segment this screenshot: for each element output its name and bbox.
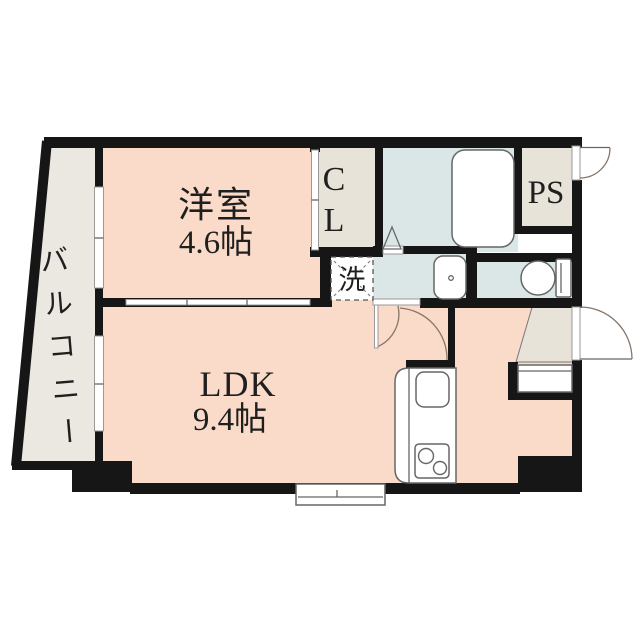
wall-shoebox-bottom [508, 392, 572, 400]
ldk-name: LDK [200, 364, 277, 404]
washbasin [434, 256, 466, 299]
wall-laundry-left [320, 252, 331, 304]
wall-kitchen-stub [406, 360, 455, 368]
yoshitsu-sliding-door [126, 300, 310, 306]
ldk-bottom-window [296, 484, 385, 505]
bathtub [452, 150, 514, 247]
closet-label-c: C [323, 161, 346, 198]
kitchen-sink [416, 372, 449, 407]
entrance-door-strip [572, 307, 580, 360]
wall-washroom-top-right [403, 246, 468, 254]
ldk-floor [99, 296, 575, 486]
wall-ps-bottom [514, 226, 580, 234]
toilet-bowl [521, 261, 555, 295]
laundry-label: 洗 [339, 265, 366, 295]
entrance-door-arc [580, 307, 632, 359]
ldk-size: 9.4帖 [193, 401, 267, 438]
ps-door-strip [572, 146, 580, 180]
wall-hall-genkan-divider [448, 298, 455, 362]
wall-block-bottom-right [518, 456, 580, 492]
pipe-space-label: PS [528, 175, 565, 211]
shoe-cabinet [518, 365, 572, 392]
wall-block-bottom-left [72, 461, 132, 492]
wall-bath-ps-divider [514, 144, 522, 234]
wall-closet-bath-divider [375, 137, 383, 257]
closet-label-l: L [324, 202, 345, 239]
stove-burner-1 [419, 449, 434, 464]
ps-door-arc [580, 148, 610, 178]
wall-washroom-toilet-divider [466, 245, 477, 302]
wall-washroom-top-left [373, 246, 383, 254]
western-room-size: 4.6帖 [179, 224, 253, 261]
wall-hallway-left-stub [310, 298, 332, 307]
stove-burner-2 [434, 462, 447, 475]
washroom-door-opening [373, 299, 420, 305]
ps-service-box [522, 234, 572, 253]
ldk-hall-door-leaf [375, 305, 379, 348]
wall-right-lower [572, 360, 582, 492]
toilet-tank [556, 259, 571, 297]
western-room-name: 洋室 [178, 185, 254, 225]
floor-plan: 洋室 4.6帖 LDK 9.4帖 C L PS 洗 バルコニー [0, 0, 640, 640]
wall-right-mid [572, 180, 582, 307]
